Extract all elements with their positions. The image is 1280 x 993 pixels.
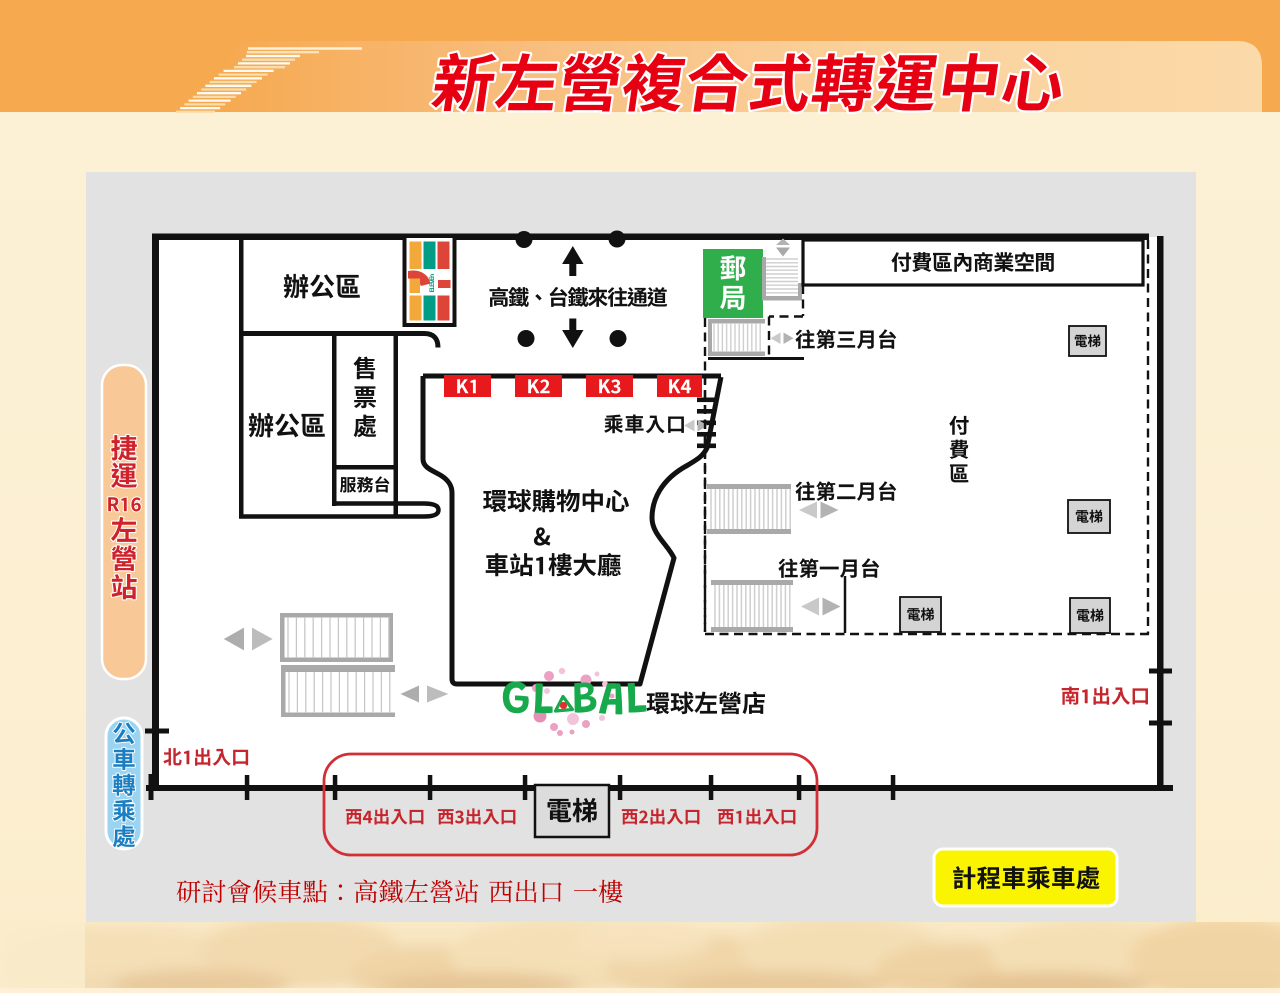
- svg-text:ELEVEn: ELEVEn: [429, 274, 436, 293]
